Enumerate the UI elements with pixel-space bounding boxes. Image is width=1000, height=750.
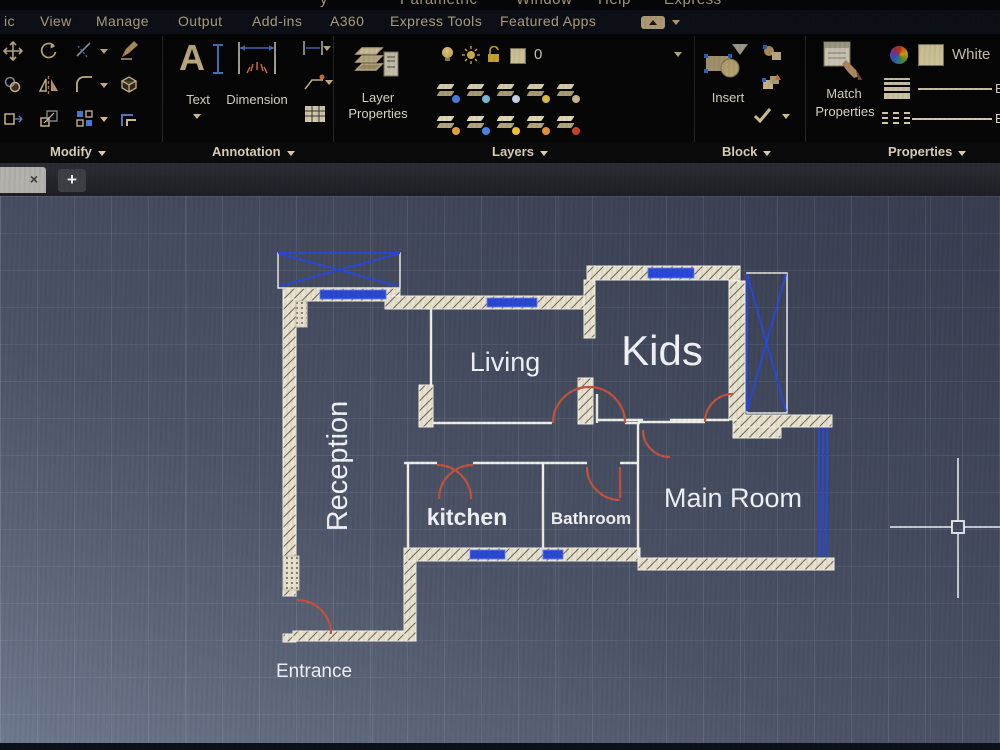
ribbon: A Text Dimension — [0, 34, 1000, 163]
block-panel: Insert — [696, 34, 806, 142]
room-label-main-room: Main Room — [664, 483, 802, 513]
match-properties-label-1[interactable]: Match — [810, 86, 878, 101]
lineweight-value-label: B — [995, 81, 1000, 96]
layers-panel: Layer Properties 0 — [336, 34, 692, 142]
modify-panel-label[interactable]: Modify — [50, 144, 106, 159]
block-caret-icon[interactable] — [782, 114, 790, 119]
dim-linear-icon[interactable] — [301, 40, 325, 64]
annotation-panel: A Text Dimension — [165, 34, 331, 142]
array-caret-icon[interactable] — [100, 117, 108, 122]
text-caret-icon[interactable] — [193, 114, 201, 119]
hatched-walls — [283, 266, 834, 642]
drawing-canvas[interactable]: Living Kids Reception kitchen Bathroom M… — [0, 196, 1000, 743]
ribbon-tab-express-tools[interactable]: Express Tools — [390, 13, 482, 29]
layer-properties-label-2[interactable]: Properties — [340, 106, 416, 121]
table-icon[interactable] — [303, 104, 327, 128]
properties-panel-label[interactable]: Properties — [888, 144, 966, 159]
layer-match-icon[interactable] — [466, 114, 490, 134]
create-block-icon[interactable] — [760, 42, 784, 66]
layer-lock-icon[interactable] — [486, 46, 502, 70]
menu-item[interactable]: y — [320, 0, 328, 8]
ribbon-tab-output[interactable]: Output — [178, 13, 222, 29]
ribbon-tab-a360[interactable]: A360 — [330, 13, 364, 29]
layer-isolate-icon[interactable] — [436, 82, 460, 102]
floor-plan-drawing: Living Kids Reception kitchen Bathroom M… — [0, 196, 1000, 743]
crosshair-cursor — [890, 458, 1000, 598]
layer-properties-icon[interactable] — [354, 40, 402, 64]
erase-icon[interactable] — [118, 38, 142, 62]
annotation-caret-icon — [287, 151, 295, 156]
current-layer-name[interactable]: 0 — [534, 46, 542, 63]
scale-icon[interactable] — [38, 108, 62, 132]
text-tool-icon[interactable]: A — [179, 40, 205, 76]
ribbon-tab-addins[interactable]: Add-ins — [252, 13, 302, 29]
layer-unisolate-icon[interactable] — [466, 82, 490, 102]
fillet-icon[interactable] — [74, 74, 98, 98]
color-wheel-icon[interactable] — [890, 46, 908, 64]
layer-on-bulb-icon[interactable] — [442, 47, 453, 62]
leader-caret-icon[interactable] — [325, 80, 333, 85]
linetype-value-label: B — [995, 111, 1000, 126]
dimension-tool-icon[interactable] — [233, 40, 281, 64]
dimension-tool-label[interactable]: Dimension — [217, 92, 297, 107]
room-label-bathroom: Bathroom — [551, 509, 631, 528]
explode-icon[interactable] — [118, 74, 142, 98]
room-label-living: Living — [470, 347, 541, 377]
trim-icon[interactable] — [74, 40, 98, 64]
lineweight-value-line[interactable] — [918, 88, 992, 90]
stretch-icon[interactable] — [2, 108, 26, 132]
layer-freeze-icon[interactable] — [496, 82, 520, 102]
modify-caret-icon — [98, 151, 106, 156]
object-color-name[interactable]: White — [952, 46, 990, 63]
lineweight-icon[interactable] — [884, 78, 910, 101]
mirror-icon[interactable] — [38, 74, 62, 98]
ribbon-tab[interactable]: ic — [4, 13, 15, 29]
layers-panel-label[interactable]: Layers — [492, 144, 548, 159]
ribbon-collapse-caret-icon[interactable] — [672, 20, 680, 25]
text-tool-label[interactable]: Text — [173, 92, 223, 107]
text-cursor-icon — [217, 44, 219, 74]
offset-icon[interactable] — [118, 108, 142, 132]
ribbon-collapse-button[interactable] — [641, 16, 665, 29]
object-color-swatch[interactable] — [918, 44, 944, 66]
linetype-value-line[interactable] — [912, 118, 992, 120]
room-label-kids: Kids — [621, 327, 703, 374]
room-label-reception: Reception — [322, 401, 354, 532]
trim-caret-icon[interactable] — [100, 49, 108, 54]
room-label-kitchen: kitchen — [427, 504, 508, 530]
linetype-icon[interactable] — [882, 112, 910, 127]
match-properties-label-2[interactable]: Properties — [808, 104, 882, 119]
layer-freeze-sun-icon[interactable] — [462, 46, 480, 70]
layer-delete-icon[interactable] — [556, 114, 580, 134]
drawing-file-tab[interactable]: × — [0, 167, 46, 193]
copy-icon[interactable] — [2, 74, 26, 98]
ribbon-tab-bar: ic View Manage Output Add-ins A360 Expre… — [0, 10, 1000, 35]
menubar: y Parametric Window Help Express — [0, 0, 1000, 10]
block-attrib-check-icon[interactable] — [752, 106, 776, 130]
rotate-icon[interactable] — [38, 40, 62, 64]
menu-item[interactable]: Help — [598, 0, 631, 8]
array-icon[interactable] — [74, 108, 98, 132]
layer-color-swatch[interactable] — [510, 48, 526, 64]
annotation-panel-label[interactable]: Annotation — [212, 144, 295, 159]
layer-thaw-icon[interactable] — [496, 114, 520, 134]
file-tab-bar: × + — [0, 163, 1000, 196]
block-caret-icon — [763, 151, 771, 156]
insert-label[interactable]: Insert — [696, 90, 760, 105]
layer-lock-tool-icon[interactable] — [526, 82, 550, 102]
panel-label-strip: Modify Annotation Layers Block Propertie… — [0, 142, 1000, 163]
screen-bottom-edge — [0, 743, 1000, 750]
dim-caret-icon[interactable] — [323, 46, 331, 51]
move-icon[interactable] — [2, 40, 26, 64]
block-panel-label[interactable]: Block — [722, 144, 771, 159]
menu-item[interactable]: Window — [516, 0, 572, 8]
menu-item[interactable]: Parametric — [400, 0, 478, 8]
new-tab-button[interactable]: + — [58, 169, 86, 192]
room-label-entrance: Entrance — [276, 661, 352, 682]
layer-unlock-icon[interactable] — [526, 114, 550, 134]
menu-item[interactable]: Express — [664, 0, 722, 8]
properties-panel: Match Properties White B B — [808, 34, 1000, 142]
ribbon-tab-featured-apps[interactable]: Featured Apps — [500, 13, 596, 29]
leader-icon[interactable] — [303, 72, 327, 96]
layer-properties-label-1[interactable]: Layer — [340, 90, 416, 105]
layer-states-icon[interactable] — [556, 82, 580, 102]
close-tab-icon[interactable]: × — [30, 171, 38, 187]
fillet-caret-icon[interactable] — [100, 83, 108, 88]
match-properties-icon[interactable] — [822, 40, 864, 64]
layers-caret-icon — [540, 151, 548, 156]
layer-dropdown-caret-icon[interactable] — [674, 52, 682, 57]
ribbon-tab-view[interactable]: View — [40, 13, 72, 29]
ribbon-tab-manage[interactable]: Manage — [96, 13, 149, 29]
modify-panel — [0, 34, 160, 142]
insert-block-icon[interactable] — [702, 40, 750, 64]
autocad-window: y Parametric Window Help Express ic View… — [0, 0, 1000, 750]
layer-off-icon[interactable] — [436, 114, 460, 134]
properties-caret-icon — [958, 151, 966, 156]
edit-attributes-icon[interactable] — [760, 72, 784, 96]
up-arrow-icon — [649, 20, 657, 25]
